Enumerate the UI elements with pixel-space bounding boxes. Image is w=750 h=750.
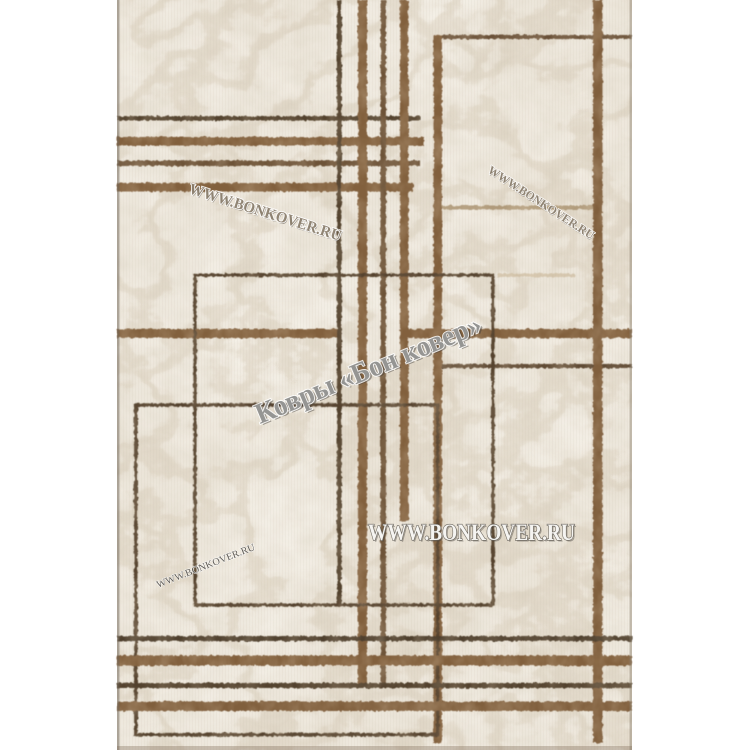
svg-text:WWW.BONKOVER.RU: WWW.BONKOVER.RU (368, 520, 575, 545)
